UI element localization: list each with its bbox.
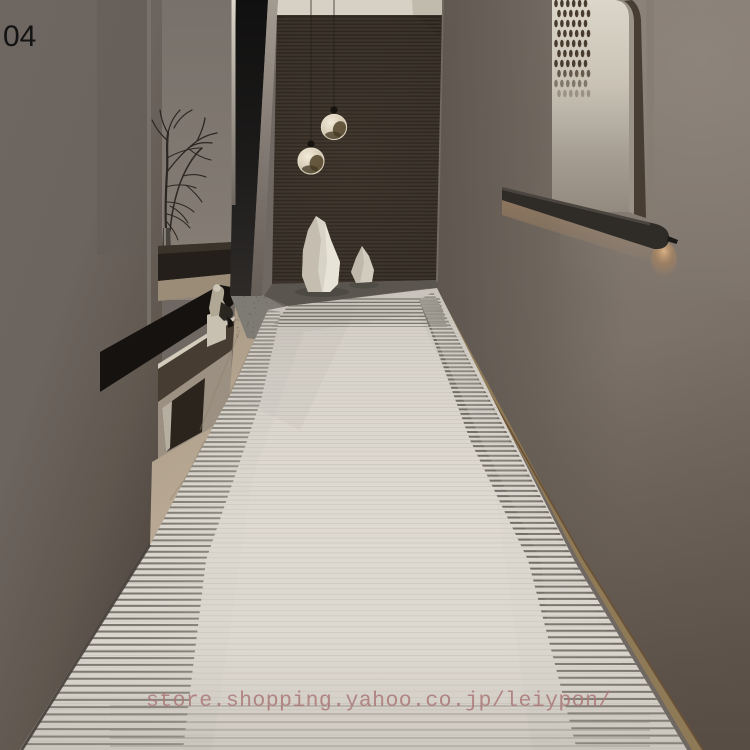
svg-text:04: 04 bbox=[3, 20, 36, 53]
svg-text:store.shopping.yahoo.co.jp/lei: store.shopping.yahoo.co.jp/leiypon/ bbox=[146, 689, 612, 713]
